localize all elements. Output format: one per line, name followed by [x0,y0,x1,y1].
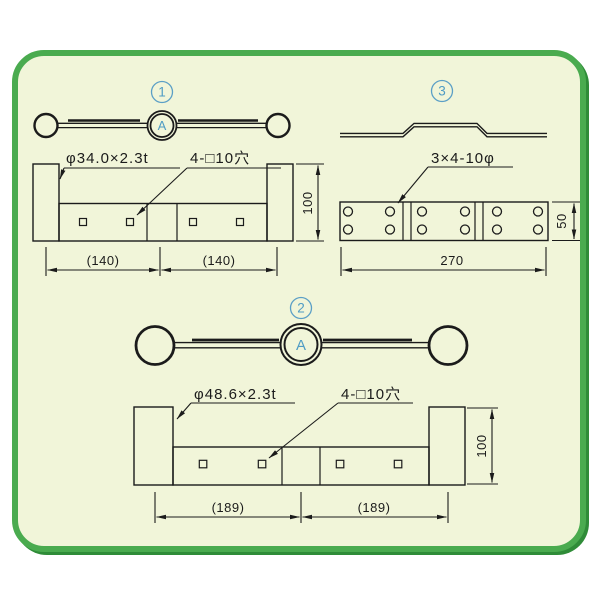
width-dimension-2: (189) (189) [155,492,448,523]
dim-140-right: (140) [203,253,236,268]
drawing2-number: 2 [297,301,305,316]
holes-label-3: 3×4-10φ [431,150,495,167]
pipe-spec-callout-1: φ34.0×2.3t [60,150,180,179]
dim-height-50: 50 [554,213,569,228]
holes-label-2: 4-□10穴 [341,386,401,403]
drawing2: 2 A [134,298,498,524]
dim-189-right: (189) [358,500,391,515]
dim-height-100-2: 100 [474,434,489,457]
height-dimension-2: 100 [467,408,498,484]
dim-189-left: (189) [212,500,245,515]
drawing1-number: 1 [158,85,166,100]
bracket-front-view-1 [33,164,293,241]
holes-callout-3: 3×4-10φ [398,150,513,203]
pipe-spec-callout-2: φ48.6×2.3t [177,386,295,419]
left-pipe-ring [35,114,58,137]
bracket-front-view-2 [134,407,465,485]
width-dimension-1: (140) (140) [46,247,277,276]
page: 1 A [0,0,600,600]
plate-front-view-3 [340,202,548,241]
right-pipe-ring [429,327,467,365]
section-label-a-2: A [296,337,306,354]
right-pipe-ring [267,114,290,137]
height-dimension-3: 50 [552,202,580,241]
pipe-spec-label-1: φ34.0×2.3t [66,150,149,167]
width-dimension-3: 270 [341,247,546,276]
technical-drawing-canvas: 1 A [0,0,600,600]
holes-callout-1: 4-□10穴 [137,150,281,215]
drawing2-number-badge: 2 [291,298,312,319]
dim-140-left: (140) [87,253,120,268]
height-dimension-1: 100 [296,164,324,241]
square-holes-2 [199,460,401,468]
dim-270: 270 [440,253,463,268]
dim-height-100-1: 100 [300,191,315,214]
round-holes-3 [344,207,543,234]
drawing1-number-badge: 1 [152,82,173,103]
square-holes-1 [80,219,244,226]
left-pipe-ring [136,327,174,365]
drawing3-number-badge: 3 [432,81,453,102]
drawing3-number: 3 [438,84,446,99]
drawing3: 3 3×4-10φ [340,81,580,277]
drawing1: 1 A [33,82,324,277]
holes-label-1: 4-□10穴 [190,150,250,167]
pipe-spec-label-2: φ48.6×2.3t [194,386,277,403]
bent-plate-profile-view [340,123,547,136]
section-label-a-1: A [158,118,167,133]
